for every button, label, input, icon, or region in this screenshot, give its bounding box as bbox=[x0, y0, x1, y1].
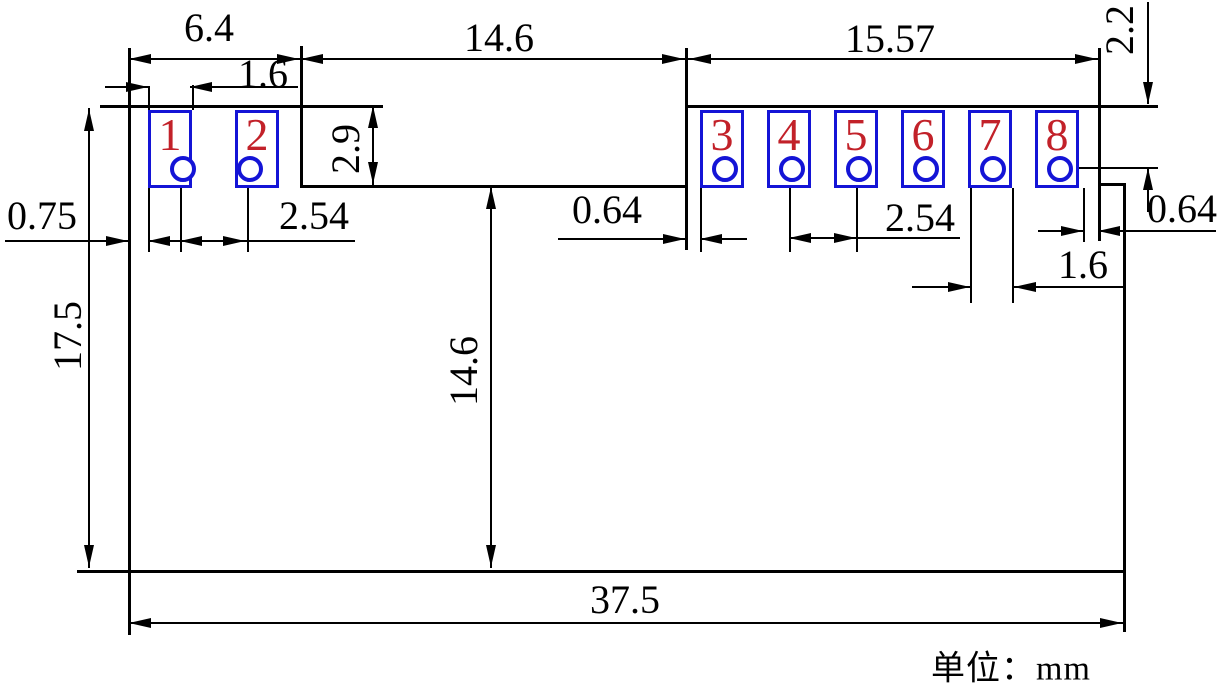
arrowhead-up bbox=[368, 106, 378, 128]
drawing-line bbox=[1098, 48, 1101, 241]
arrowhead-up bbox=[84, 109, 94, 131]
dim-label-14-6-vert: 14.6 bbox=[444, 336, 484, 406]
pad-6: 6 bbox=[901, 110, 945, 188]
unit-note: 单位：mm bbox=[931, 641, 1091, 690]
pad-hole bbox=[237, 156, 263, 182]
arrowhead-right bbox=[663, 234, 685, 244]
pad-hole bbox=[913, 156, 939, 182]
arrowhead-right bbox=[106, 236, 128, 246]
dim-label-37-5: 37.5 bbox=[590, 580, 660, 620]
arrowhead-right bbox=[223, 236, 245, 246]
pad-hole bbox=[1047, 156, 1073, 182]
pad-hole bbox=[980, 156, 1006, 182]
pad-number: 7 bbox=[971, 113, 1009, 157]
dim-label-15-57: 15.57 bbox=[845, 19, 935, 59]
arrowhead-left bbox=[689, 54, 711, 64]
arrowhead-left bbox=[789, 233, 811, 243]
dim-label-2-54-right: 2.54 bbox=[885, 198, 955, 238]
drawing-line bbox=[1083, 188, 1085, 242]
pad-number: 2 bbox=[238, 113, 276, 157]
pad-2: 2 bbox=[235, 110, 279, 188]
arrowhead-right bbox=[1075, 54, 1097, 64]
pad-hole bbox=[779, 156, 805, 182]
drawing-line bbox=[300, 46, 303, 185]
arrowhead-down bbox=[84, 545, 94, 567]
drawing-line bbox=[1098, 183, 1123, 186]
pad-1: 1 bbox=[148, 110, 192, 188]
drawing-line bbox=[1123, 183, 1126, 632]
arrowhead-left bbox=[129, 618, 151, 628]
pad-number: 1 bbox=[151, 113, 189, 157]
arrowhead-left bbox=[700, 234, 722, 244]
pad-number: 5 bbox=[837, 113, 875, 157]
pad-8: 8 bbox=[1035, 110, 1079, 188]
arrowhead-left bbox=[180, 236, 202, 246]
dim-label-2-9: 2.9 bbox=[326, 124, 366, 174]
arrowhead-right bbox=[1100, 618, 1122, 628]
pad-number: 3 bbox=[703, 113, 741, 157]
arrowhead-left bbox=[129, 54, 151, 64]
pad-5: 5 bbox=[834, 110, 878, 188]
dim-label-2-2: 2.2 bbox=[1100, 5, 1140, 55]
drawing-line bbox=[100, 105, 383, 108]
arrowhead-down bbox=[368, 162, 378, 184]
pad-hole bbox=[846, 156, 872, 182]
drawing-line bbox=[77, 570, 1123, 573]
arrowhead-left bbox=[1098, 226, 1120, 236]
pad-hole bbox=[712, 156, 738, 182]
arrowhead-down bbox=[486, 545, 496, 567]
pad-3: 3 bbox=[700, 110, 744, 188]
arrowhead-up bbox=[486, 187, 496, 209]
dim-label-0-75: 0.75 bbox=[7, 196, 77, 236]
arrowhead-left bbox=[301, 54, 323, 64]
pad-number: 4 bbox=[770, 113, 808, 157]
arrowhead-left bbox=[190, 82, 212, 92]
drawing-line bbox=[148, 86, 150, 110]
dim-label-17-5: 17.5 bbox=[48, 301, 88, 371]
pad-number: 6 bbox=[904, 113, 942, 157]
arrowhead-right bbox=[1061, 226, 1083, 236]
arrowhead-right bbox=[948, 282, 970, 292]
drawing-line bbox=[685, 48, 688, 250]
arrowhead-right bbox=[662, 54, 684, 64]
arrowhead-down bbox=[1143, 82, 1153, 104]
drawing-line bbox=[490, 186, 492, 568]
drawing-line bbox=[128, 622, 1123, 624]
drawing-line bbox=[128, 48, 131, 635]
arrowhead-left bbox=[148, 236, 170, 246]
technical-drawing: 1 2 3 4 5 6 7 8 6.4 14.6 15.57 2.2 1.6 2… bbox=[0, 0, 1225, 692]
dim-label-2-54-left: 2.54 bbox=[279, 196, 349, 236]
drawing-line bbox=[970, 188, 972, 303]
drawing-line bbox=[685, 105, 1158, 108]
dim-label-0-64-right: 0.64 bbox=[1147, 189, 1217, 229]
pad-7: 7 bbox=[968, 110, 1012, 188]
dim-label-0-64-left: 0.64 bbox=[572, 190, 642, 230]
arrowhead-left bbox=[1014, 282, 1036, 292]
pad-number: 8 bbox=[1038, 113, 1076, 157]
dim-label-1-6-left: 1.6 bbox=[238, 54, 288, 94]
dim-label-14-6-top: 14.6 bbox=[464, 18, 534, 58]
dim-label-6-4: 6.4 bbox=[184, 8, 234, 48]
arrowhead-right bbox=[126, 82, 148, 92]
pad-hole bbox=[170, 156, 196, 182]
dim-label-1-6-right: 1.6 bbox=[1058, 245, 1108, 285]
arrowhead-right bbox=[834, 233, 856, 243]
pad-4: 4 bbox=[767, 110, 811, 188]
